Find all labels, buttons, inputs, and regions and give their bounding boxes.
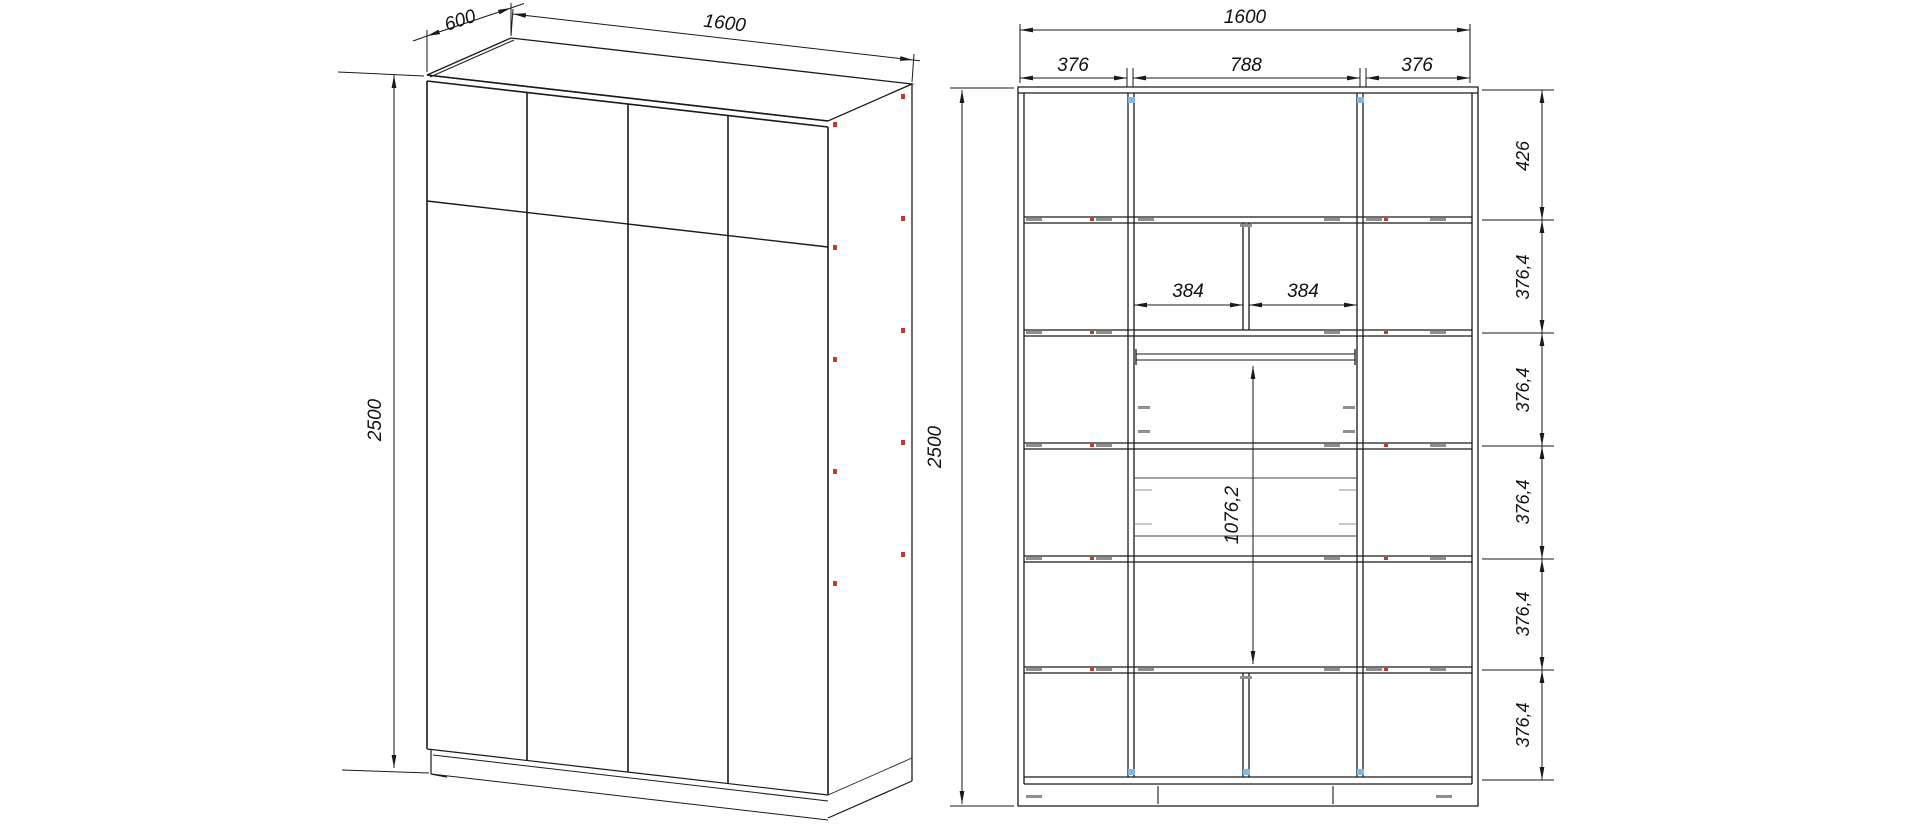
front-dimensions — [950, 24, 1554, 806]
persp-depth-label: 600 — [442, 6, 479, 36]
perspective-view: 600 1600 2500 — [338, 3, 920, 820]
front-height-label: 2500 — [925, 425, 946, 469]
front-view: 1600 376 788 376 2500 384 384 1076,2 426… — [925, 7, 1554, 806]
back-panel-seam — [1134, 478, 1357, 536]
wardrobe-blueprint: 600 1600 2500 — [0, 0, 1920, 834]
front-col-left-label: 376 — [1057, 55, 1089, 76]
perspective-dim-labels: 600 1600 2500 — [365, 6, 747, 442]
front-overall-width-label: 1600 — [1224, 7, 1267, 28]
front-row5-label: 376,4 — [1513, 591, 1533, 636]
drawing-canvas: 600 1600 2500 — [0, 0, 1920, 834]
front-structure — [1018, 87, 1478, 806]
front-col-right-label: 376 — [1401, 55, 1433, 76]
side-panel-fastener-dots — [833, 94, 905, 586]
persp-width-label: 1600 — [702, 11, 747, 37]
front-fastener-marks — [1026, 97, 1452, 798]
front-row2-label: 376,4 — [1513, 254, 1533, 299]
front-row4-label: 376,4 — [1513, 479, 1533, 524]
front-row1-label: 426 — [1513, 140, 1533, 171]
front-col-center-label: 788 — [1230, 55, 1262, 76]
persp-height-label: 2500 — [365, 398, 386, 442]
perspective-structure — [427, 38, 912, 820]
front-row6-label: 376,4 — [1513, 702, 1533, 747]
front-dim-labels: 1600 376 788 376 2500 384 384 1076,2 426… — [925, 7, 1533, 748]
front-inner-width-left-label: 384 — [1172, 281, 1204, 302]
front-row3-label: 376,4 — [1513, 367, 1533, 412]
front-inner-width-right-label: 384 — [1287, 281, 1319, 302]
front-hanging-height-label: 1076,2 — [1222, 486, 1243, 545]
